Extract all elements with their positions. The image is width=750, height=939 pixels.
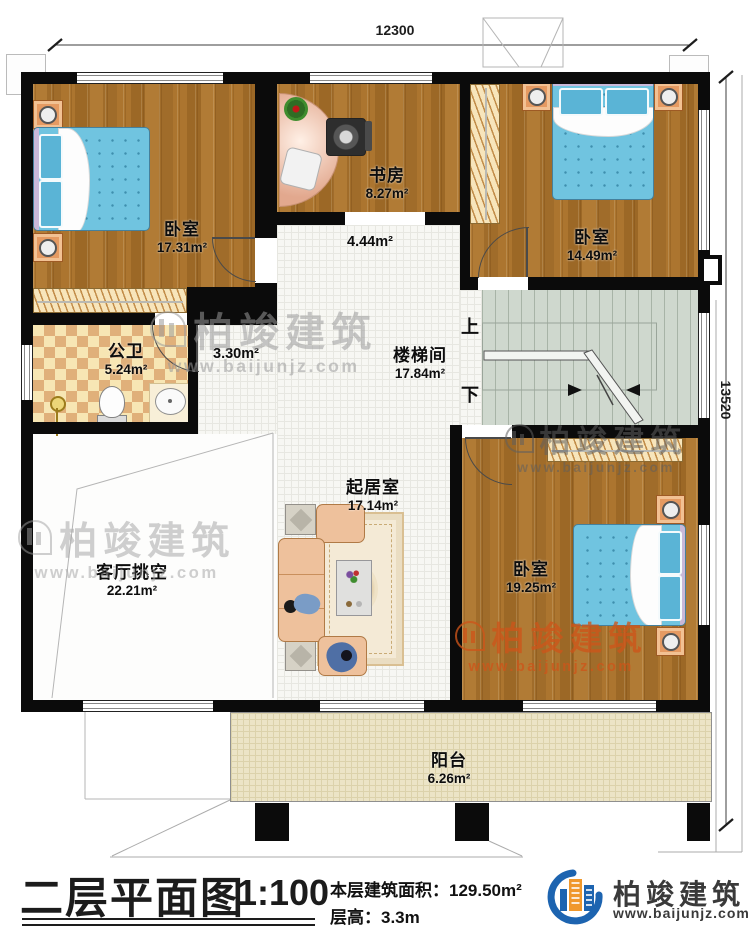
dimension-right: 13520: [718, 370, 734, 430]
room-area: 8.27m²: [366, 186, 409, 202]
stairs-up-label: 上: [461, 313, 479, 339]
scale-label: 1:100: [237, 872, 329, 914]
room-name: 起居室: [346, 478, 400, 498]
room-name: 卧室: [506, 560, 556, 580]
room-label-bathroom: 公卫 5.24m²: [105, 342, 148, 377]
room-area: 4.44m²: [347, 234, 393, 251]
sink-drain: [168, 399, 172, 403]
pillow: [605, 88, 649, 116]
wall: [460, 277, 478, 290]
door-leaf: [196, 325, 198, 371]
wall: [460, 84, 470, 290]
brand-logo-icon: [543, 867, 607, 927]
room-label-bedroom-nw: 卧室 17.31m²: [157, 220, 207, 255]
window: [21, 345, 33, 400]
room-name: 卧室: [567, 228, 617, 248]
computer-monitor: [326, 118, 366, 156]
room-area: 17.14m²: [346, 498, 400, 514]
stairs-down-label: 下: [461, 381, 479, 407]
flue-inner: [704, 259, 718, 281]
door-leaf: [212, 237, 255, 239]
room-area: 17.84m²: [393, 366, 447, 382]
room-name: 客厅挑空: [96, 563, 168, 583]
pillow: [39, 180, 63, 228]
room-name: 卧室: [157, 220, 207, 240]
floor-height-info: 层高：3.3m: [330, 903, 420, 928]
floor-area-label: 本层建筑面积：: [330, 881, 449, 900]
dimension-top: 12300: [360, 22, 430, 38]
room-name: 书房: [366, 166, 409, 186]
floor-area-value: 129.50m²: [449, 881, 522, 900]
person-head: [341, 650, 352, 661]
wall: [21, 400, 33, 712]
wall: [450, 425, 462, 712]
lamp-icon: [39, 106, 57, 124]
room-area: 3.30m²: [213, 346, 259, 363]
side-table: [285, 640, 316, 671]
wall: [425, 212, 460, 225]
room-area: 6.26m²: [428, 771, 471, 787]
corridor-floor: [198, 325, 277, 434]
sofa: [278, 538, 325, 642]
pillow: [658, 531, 682, 575]
nightstand: [522, 82, 551, 111]
wall: [213, 700, 320, 712]
lamp-icon: [662, 501, 680, 519]
floor-drain-icon: [50, 396, 66, 412]
coffee-table: [336, 560, 372, 616]
pillow: [559, 88, 603, 116]
nightstand: [654, 82, 683, 111]
window: [698, 110, 710, 250]
wall: [698, 625, 710, 712]
wardrobe-bedroom-ne: [470, 84, 500, 224]
floor-height-label: 层高：: [330, 908, 381, 927]
bed-bedroom-se: [573, 524, 686, 626]
room-area: 17.31m²: [157, 240, 207, 256]
lamp-icon: [39, 239, 57, 257]
room-label-corridor: 3.30m²: [213, 346, 259, 363]
side-table-top: [289, 644, 312, 667]
wall: [424, 700, 523, 712]
nightstand: [656, 495, 685, 524]
floor-area-info: 本层建筑面积：129.50m²: [330, 876, 522, 901]
column: [687, 803, 710, 841]
plant-icon: [284, 97, 308, 121]
wall: [512, 425, 710, 438]
room-area: 5.24m²: [105, 362, 148, 378]
door-leaf: [465, 437, 511, 439]
room-label-sitting: 起居室 17.14m²: [346, 478, 400, 513]
bed-bedroom-nw: [33, 127, 150, 231]
nightstand: [33, 100, 63, 129]
wardrobe-bedroom-nw: [33, 288, 187, 313]
cup-icon: [346, 601, 352, 607]
wall: [223, 72, 310, 84]
monitor-stand: [365, 121, 372, 151]
room-area: 19.25m²: [506, 580, 556, 596]
room-balcony-floor: [230, 712, 712, 802]
room-area: 14.49m²: [567, 248, 617, 264]
wall: [698, 72, 710, 110]
wardrobe-rail: [551, 450, 680, 452]
room-label-living-void: 客厅挑空 22.21m²: [96, 563, 168, 598]
hallway-floor: [277, 225, 460, 438]
room-label-study: 书房 8.27m²: [366, 166, 409, 201]
wardrobe-bedroom-se: [547, 438, 683, 462]
page-title: 二层平面图: [20, 864, 245, 926]
pillow: [658, 575, 682, 621]
wardrobe-rail: [37, 301, 183, 303]
title-underline: [22, 918, 315, 926]
window: [310, 72, 432, 84]
side-table: [285, 504, 316, 535]
wall: [255, 283, 277, 325]
floor-plan-canvas: 卧室 17.31m² 书房 8.27m² 卧室 14.49m² 4.44m² 3…: [0, 0, 750, 939]
brand-url: www.baijunjz.com: [613, 905, 750, 921]
room-name: 阳台: [428, 751, 471, 771]
window: [698, 313, 710, 418]
lamp-icon: [660, 88, 678, 106]
room-name: 公卫: [105, 342, 148, 362]
wall: [21, 313, 155, 325]
wall: [187, 287, 255, 325]
door-leaf: [526, 227, 528, 277]
column: [255, 803, 289, 841]
window: [83, 700, 213, 712]
wall: [528, 277, 710, 290]
room-label-balcony: 阳台 6.26m²: [428, 751, 471, 786]
room-label-bedroom-ne: 卧室 14.49m²: [567, 228, 617, 263]
lamp-icon: [528, 88, 546, 106]
wall: [255, 84, 277, 238]
window: [523, 700, 656, 712]
wall: [21, 700, 83, 712]
room-stairwell-floor: [482, 290, 698, 425]
wall: [21, 72, 33, 345]
room-label-bedroom-se: 卧室 19.25m²: [506, 560, 556, 595]
nightstand: [656, 627, 685, 656]
wall: [277, 212, 345, 225]
wall: [656, 700, 710, 712]
nightstand: [33, 233, 63, 262]
cup-icon: [356, 601, 362, 607]
room-label-hall: 4.44m²: [347, 234, 393, 251]
lamp-icon: [662, 633, 680, 651]
bed-bedroom-ne: [552, 80, 654, 200]
balcony-sliding-door: [320, 700, 424, 712]
wardrobe-rail: [485, 88, 487, 221]
wall: [21, 422, 198, 434]
toilet-icon: [99, 386, 125, 418]
pillow: [39, 134, 63, 180]
room-name: 楼梯间: [393, 346, 447, 366]
floor-height-value: 3.3m: [381, 908, 420, 927]
window: [77, 72, 223, 84]
window: [698, 525, 710, 625]
room-area: 22.21m²: [96, 583, 168, 599]
wall: [432, 72, 700, 84]
flowers-icon: [345, 569, 361, 583]
side-table-top: [289, 508, 312, 531]
room-label-stairwell: 楼梯间 17.84m²: [393, 346, 447, 381]
column: [455, 803, 489, 841]
